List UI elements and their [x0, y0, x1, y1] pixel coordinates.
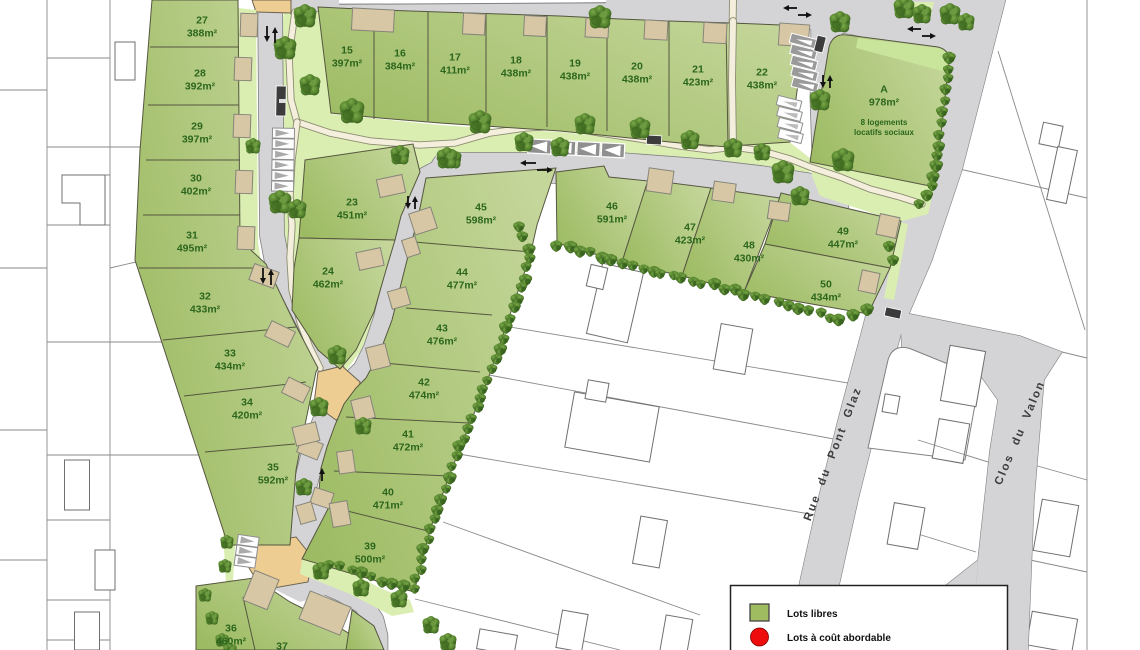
svg-text:16: 16: [394, 48, 406, 60]
svg-text:31: 31: [186, 230, 198, 242]
svg-text:36: 36: [225, 623, 237, 635]
svg-text:23: 23: [346, 197, 358, 209]
svg-text:Lots à coût abordable: Lots à coût abordable: [787, 633, 891, 644]
svg-text:438m²: 438m²: [501, 68, 532, 80]
svg-text:21: 21: [692, 64, 704, 76]
svg-text:39: 39: [364, 541, 376, 553]
svg-text:48: 48: [743, 240, 755, 252]
svg-text:29: 29: [191, 121, 203, 133]
svg-text:A: A: [880, 84, 888, 96]
svg-text:447m²: 447m²: [828, 239, 859, 251]
svg-text:495m²: 495m²: [177, 243, 208, 255]
svg-text:49: 49: [837, 226, 849, 238]
svg-text:471m²: 471m²: [373, 500, 404, 512]
svg-text:17: 17: [449, 52, 461, 64]
svg-text:388m²: 388m²: [187, 28, 218, 40]
svg-text:477m²: 477m²: [447, 280, 478, 292]
svg-text:42: 42: [418, 377, 430, 389]
svg-text:15: 15: [341, 45, 353, 57]
svg-text:462m²: 462m²: [313, 279, 344, 291]
svg-text:433m²: 433m²: [190, 304, 221, 316]
svg-text:Lots libres: Lots libres: [787, 609, 838, 620]
svg-text:598m²: 598m²: [466, 215, 497, 227]
svg-text:32: 32: [199, 291, 211, 303]
svg-text:397m²: 397m²: [182, 134, 213, 146]
svg-text:500m²: 500m²: [355, 554, 386, 566]
svg-text:978m²: 978m²: [869, 97, 900, 109]
svg-text:28: 28: [194, 68, 206, 80]
svg-text:35: 35: [267, 462, 279, 474]
svg-text:19: 19: [569, 58, 581, 70]
svg-text:20: 20: [631, 61, 643, 73]
svg-text:45: 45: [475, 202, 487, 214]
svg-text:430m²: 430m²: [734, 253, 765, 265]
svg-text:41: 41: [402, 429, 414, 441]
svg-text:451m²: 451m²: [337, 210, 368, 222]
svg-text:37: 37: [276, 641, 288, 650]
svg-text:434m²: 434m²: [215, 361, 246, 373]
svg-text:22: 22: [756, 67, 768, 79]
svg-text:24: 24: [322, 266, 334, 278]
svg-text:47: 47: [684, 222, 696, 234]
svg-text:438m²: 438m²: [622, 74, 653, 86]
svg-text:423m²: 423m²: [683, 77, 714, 89]
svg-text:44: 44: [456, 267, 468, 279]
svg-text:472m²: 472m²: [393, 442, 424, 454]
svg-text:402m²: 402m²: [181, 186, 212, 198]
svg-text:420m²: 420m²: [232, 410, 263, 422]
svg-text:438m²: 438m²: [560, 71, 591, 83]
svg-text:423m²: 423m²: [675, 235, 706, 247]
svg-text:33: 33: [224, 348, 236, 360]
svg-text:591m²: 591m²: [597, 214, 628, 226]
svg-text:27: 27: [196, 15, 208, 27]
svg-text:46: 46: [606, 201, 618, 213]
svg-text:30: 30: [190, 173, 202, 185]
svg-text:43: 43: [436, 323, 448, 335]
svg-text:40: 40: [382, 487, 394, 499]
svg-text:397m²: 397m²: [332, 58, 363, 70]
svg-text:411m²: 411m²: [440, 65, 470, 77]
svg-text:34: 34: [241, 397, 253, 409]
svg-text:18: 18: [510, 55, 522, 67]
svg-text:592m²: 592m²: [258, 475, 289, 487]
svg-text:434m²: 434m²: [811, 292, 842, 304]
svg-text:476m²: 476m²: [427, 336, 458, 348]
svg-text:8 logements: 8 logements: [861, 118, 908, 127]
svg-text:392m²: 392m²: [185, 81, 216, 93]
svg-text:locatifs sociaux: locatifs sociaux: [854, 128, 915, 137]
svg-text:384m²: 384m²: [385, 61, 416, 73]
svg-text:50: 50: [820, 279, 832, 291]
svg-text:460m²: 460m²: [216, 636, 247, 648]
svg-text:474m²: 474m²: [409, 390, 440, 402]
svg-text:438m²: 438m²: [747, 80, 778, 92]
